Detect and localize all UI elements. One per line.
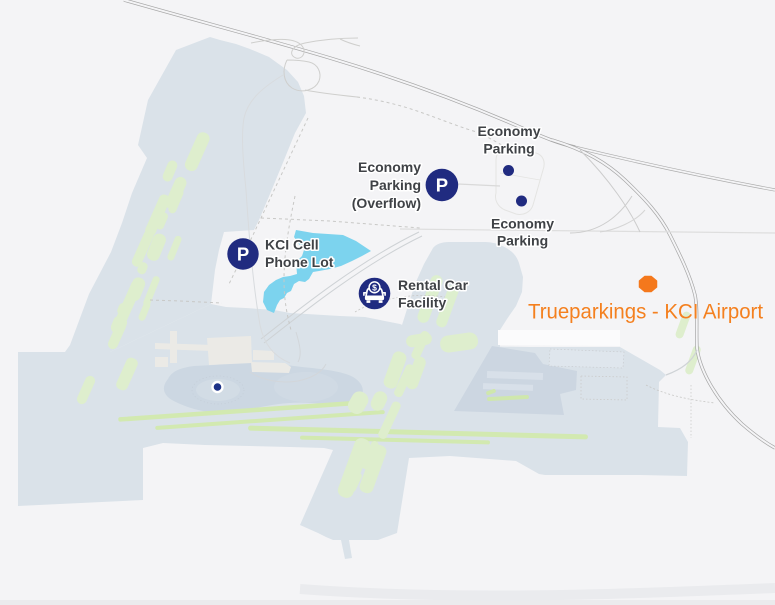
svg-text:Parking: Parking (370, 177, 421, 193)
svg-text:KCI Cell: KCI Cell (265, 237, 319, 253)
svg-text:P: P (436, 175, 448, 196)
svg-text:Rental Car: Rental Car (398, 277, 469, 293)
svg-text:Trueparkings - KCI Airport: Trueparkings - KCI Airport (528, 301, 763, 324)
svg-text:Economy: Economy (491, 216, 554, 232)
svg-text:Economy: Economy (358, 159, 421, 175)
svg-text:Phone Lot: Phone Lot (265, 254, 334, 270)
svg-text:Parking: Parking (483, 141, 534, 157)
svg-text:Facility: Facility (398, 295, 446, 311)
svg-text:Parking: Parking (497, 233, 548, 249)
svg-text:P: P (237, 244, 249, 265)
svg-text:$: $ (372, 282, 377, 292)
svg-text:Economy: Economy (477, 123, 540, 139)
svg-text:(Overflow): (Overflow) (352, 195, 421, 211)
